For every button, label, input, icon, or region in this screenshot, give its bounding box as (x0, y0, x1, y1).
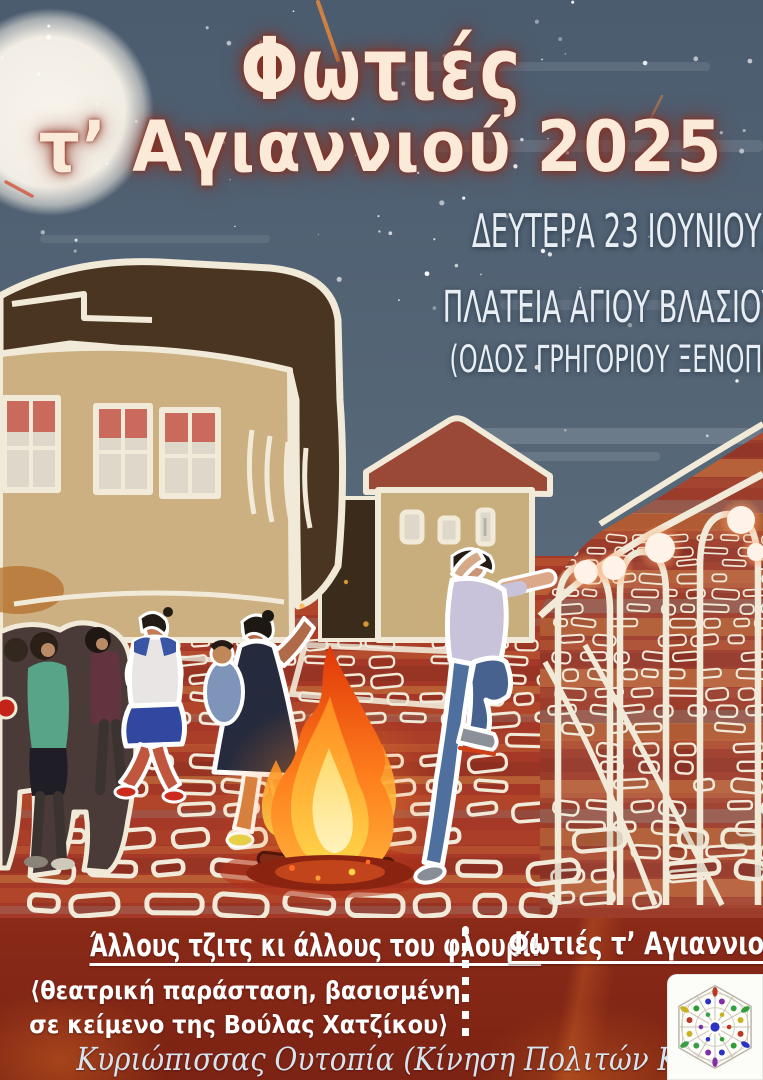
play-subtitle-2: σε κείμενο της Βούλας Χατζίκου⟩ (6, 1010, 462, 1039)
house-windows (4, 398, 218, 496)
event-venue: ΠΛΑΤΕΙΑ ΑΓΙΟΥ ΒΛΑΣΙΟΥ (340, 282, 760, 333)
event-street: (ΟΔΟΣ ΓΡΗΓΟΡΙΟΥ ΞΕΝΟΠΟΥΛΟΥ) (340, 338, 760, 381)
dotted-divider (462, 926, 469, 1044)
play-subtitle-1: ⟨θεατρική παράσταση, βασισμένη (6, 976, 462, 1005)
footer-band: Άλλους τζιτς κι άλλους του φλουρί! ⟨θεατ… (0, 918, 763, 1080)
hexagonal-rosette-logo-icon (671, 979, 759, 1075)
event-title-line-2: τ’ Αγιαννιού 2025 (0, 106, 763, 188)
footer-event-name: Φωτιές τ’ Αγιαννιού (470, 926, 763, 962)
red-balloon (0, 698, 16, 718)
poster-root: Φωτιές τ’ Αγιαννιού 2025 ΔΕΥΤΕΡΑ 23 ΙΟΥΝ… (0, 0, 763, 1080)
event-datetime: ΔΕΥΤΕΡΑ 23 ΙΟΥΝΙΟΥ, 21:30, (340, 204, 760, 258)
left-house-illustration (0, 262, 343, 640)
play-title: Άλλους τζιτς κι άλλους του φλουρί! (6, 928, 462, 964)
event-details: ΔΕΥΤΕΡΑ 23 ΙΟΥΝΙΟΥ, 21:30, ΠΛΑΤΕΙΑ ΑΓΙΟΥ… (340, 204, 760, 381)
organization-logo (667, 974, 763, 1080)
organizer-credit: Κυριώπισσας Ουτοπία (Κίνηση Πολιτών Κυρι… (18, 1040, 666, 1078)
event-title-line-1: Φωτιές (0, 20, 763, 120)
